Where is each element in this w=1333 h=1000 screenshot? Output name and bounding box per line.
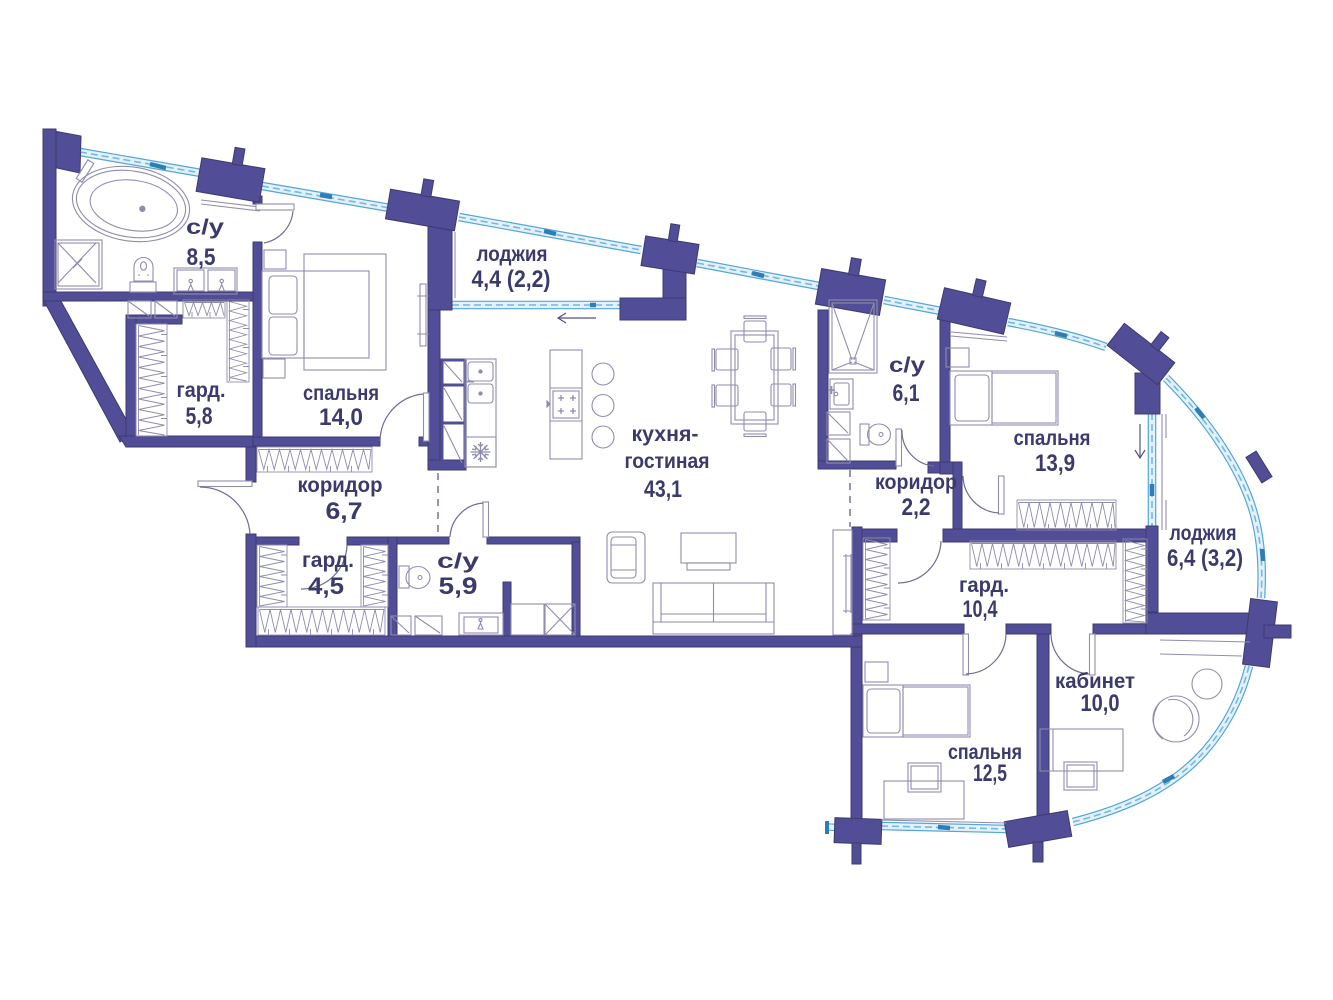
svg-text:гард.: гард. (302, 549, 354, 572)
svg-text:спальня: спальня (303, 382, 379, 405)
svg-text:8,5: 8,5 (187, 244, 216, 271)
svg-text:лоджия: лоджия (1170, 522, 1237, 545)
svg-text:43,1: 43,1 (644, 476, 682, 503)
svg-text:4,4 (2,2): 4,4 (2,2) (472, 266, 551, 293)
svg-text:10,4: 10,4 (963, 596, 998, 623)
svg-text:4,5: 4,5 (308, 573, 344, 600)
svg-text:с/у: с/у (437, 550, 479, 573)
svg-text:5,8: 5,8 (186, 403, 213, 430)
svg-text:6,7: 6,7 (326, 498, 363, 525)
svg-text:12,5: 12,5 (973, 760, 1007, 787)
svg-text:с/у: с/у (889, 354, 925, 377)
svg-text:6,1: 6,1 (893, 380, 920, 407)
svg-text:коридор: коридор (875, 471, 957, 494)
svg-text:с/у: с/у (186, 216, 224, 239)
svg-text:кухня-: кухня- (632, 423, 699, 446)
svg-text:14,0: 14,0 (319, 404, 363, 431)
svg-text:2,2: 2,2 (902, 494, 931, 521)
svg-text:гард.: гард. (959, 574, 1009, 597)
svg-text:коридор: коридор (298, 474, 383, 497)
svg-text:6,4 (3,2): 6,4 (3,2) (1167, 545, 1243, 572)
svg-text:спальня: спальня (1014, 427, 1091, 450)
svg-text:гард.: гард. (177, 379, 226, 402)
svg-text:гостиная: гостиная (625, 450, 710, 473)
svg-text:5,9: 5,9 (439, 573, 478, 600)
svg-text:лоджия: лоджия (477, 243, 548, 266)
svg-text:10,0: 10,0 (1081, 690, 1120, 717)
svg-text:13,9: 13,9 (1035, 450, 1075, 477)
